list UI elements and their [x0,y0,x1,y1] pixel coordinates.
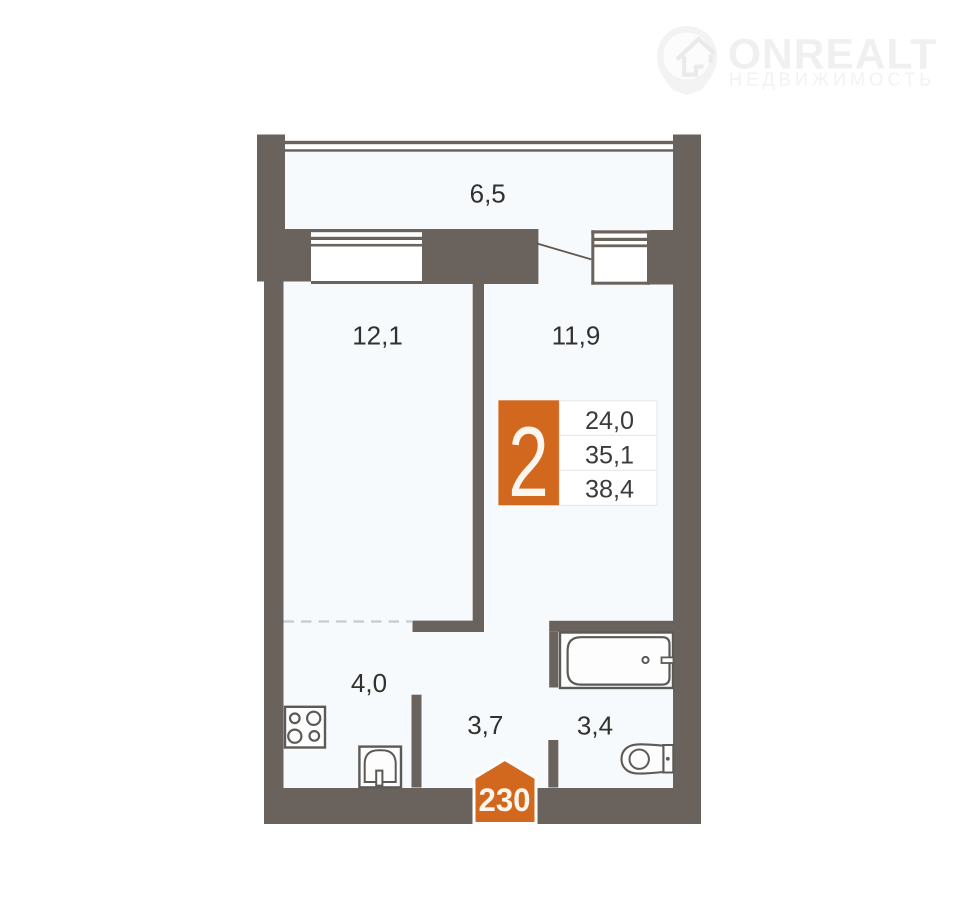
svg-text:12,1: 12,1 [352,320,403,350]
svg-text:3,7: 3,7 [467,710,503,740]
svg-text:38,4: 38,4 [585,476,634,504]
svg-text:230: 230 [479,782,531,818]
svg-text:35,1: 35,1 [585,442,634,470]
svg-text:24,0: 24,0 [585,407,634,435]
svg-text:4,0: 4,0 [351,668,387,698]
svg-text:НЕДВИЖИМОСТЬ: НЕДВИЖИМОСТЬ [729,69,935,89]
svg-text:6,5: 6,5 [470,179,506,209]
svg-text:11,9: 11,9 [552,320,601,350]
svg-text:2: 2 [508,406,549,517]
svg-text:3,4: 3,4 [577,710,613,740]
